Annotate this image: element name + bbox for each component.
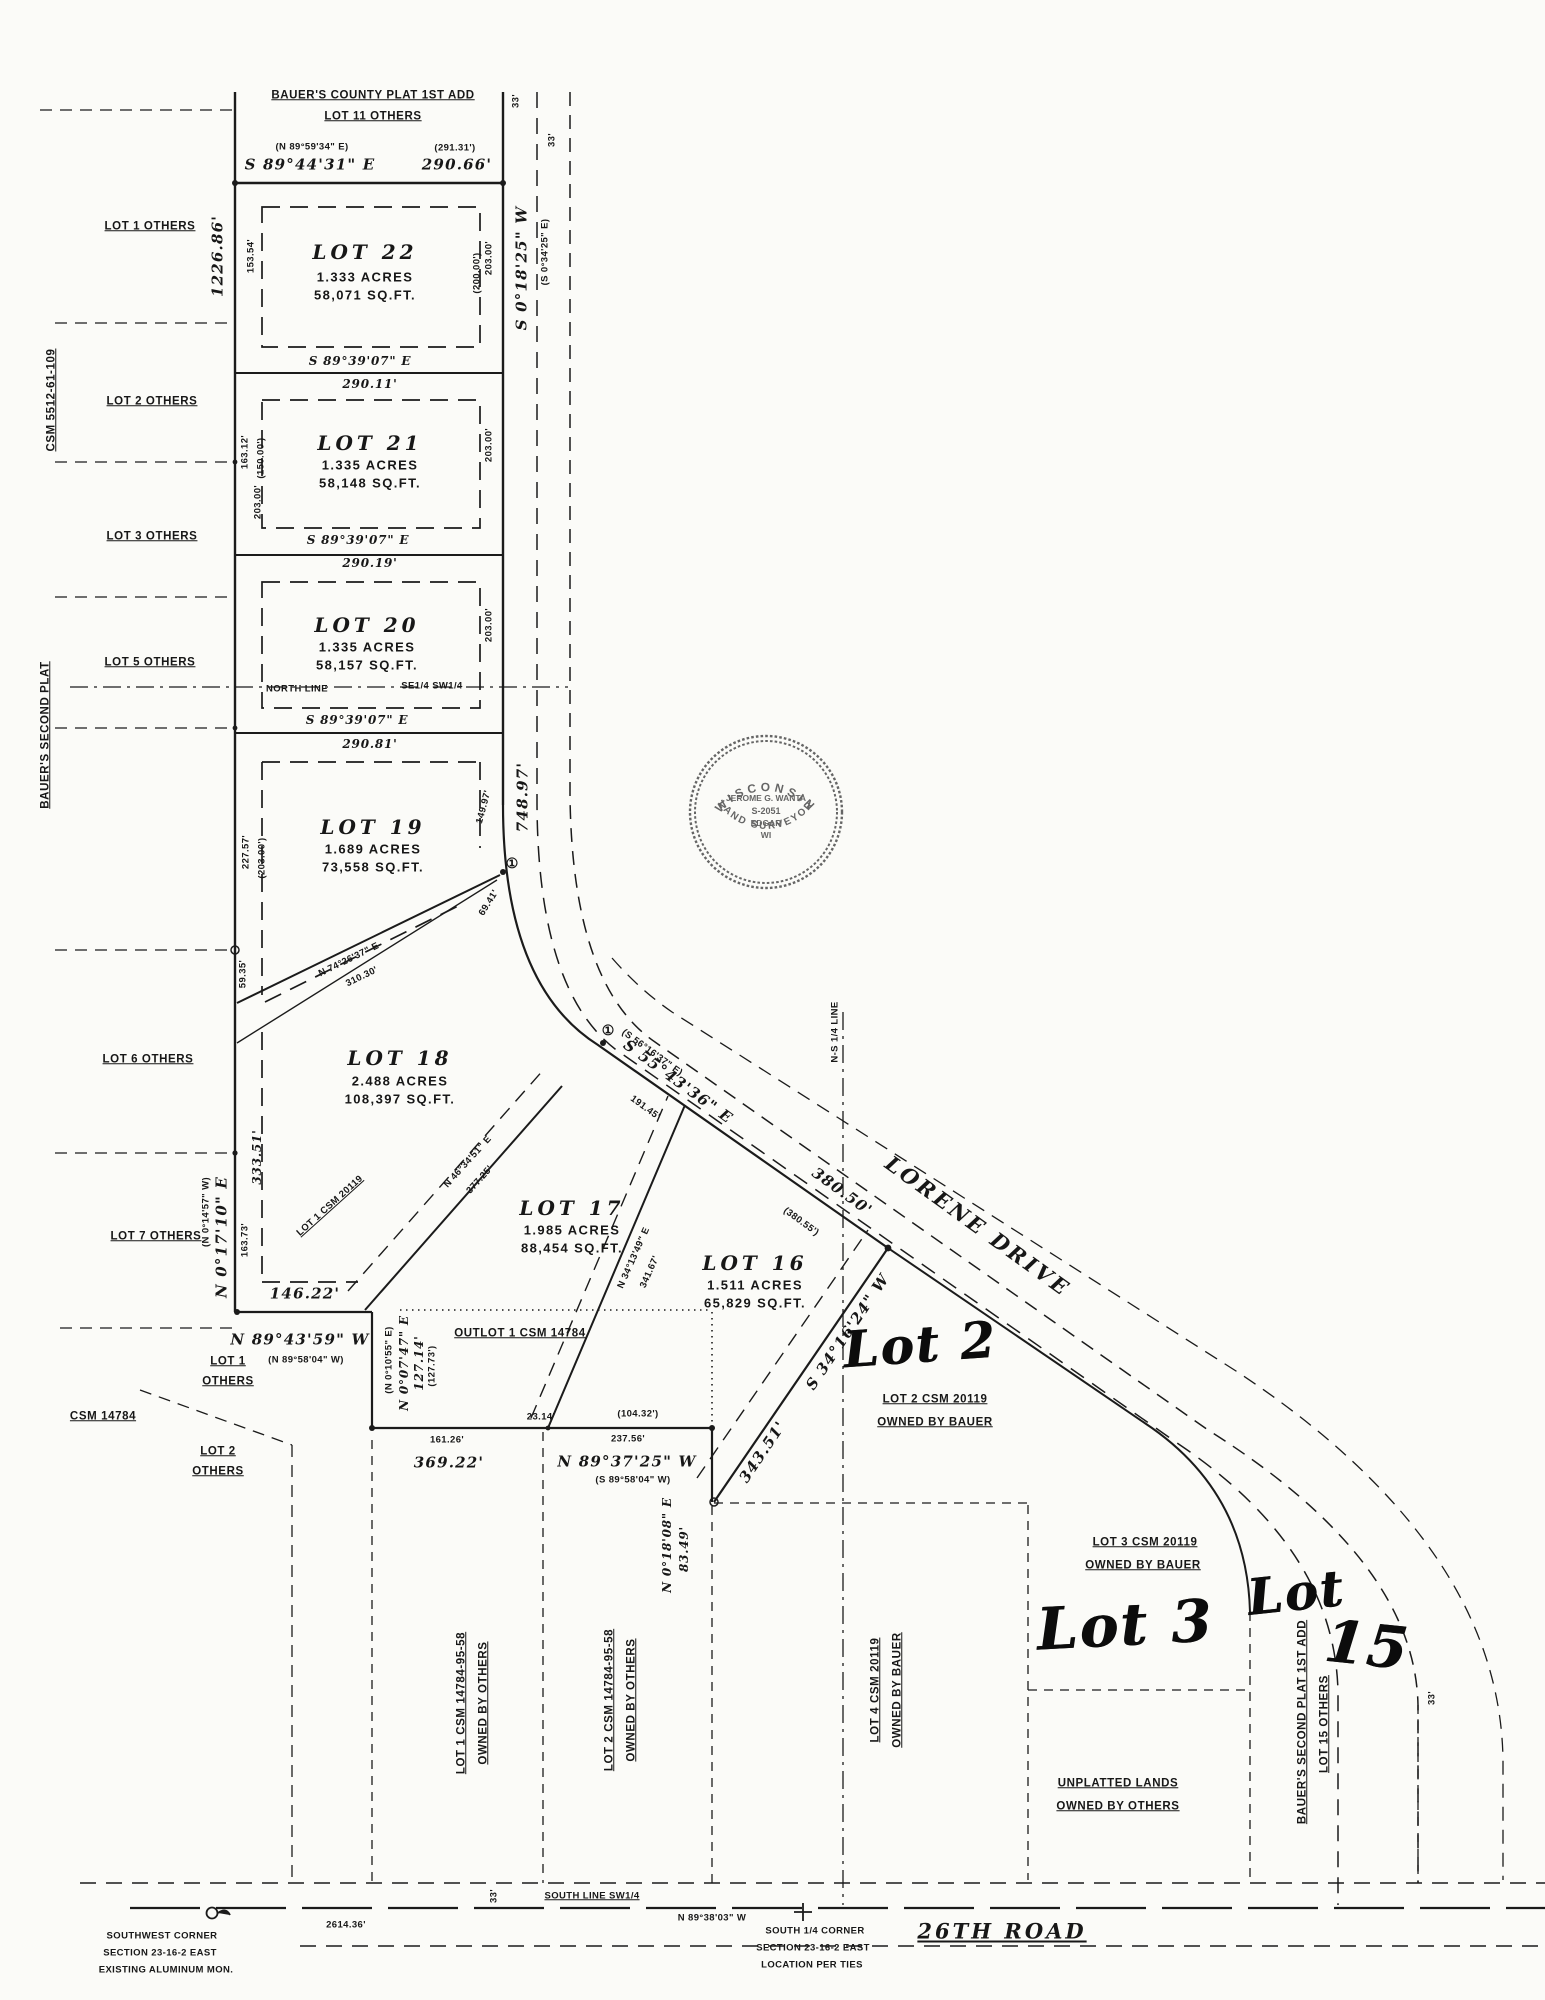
div1-bearing: S 89°39'07" E <box>309 355 412 367</box>
bauers-second-left: BAUER'S SECOND PLAT <box>40 661 52 808</box>
west-bearing-paren: (N 0°14'57" W) <box>201 1177 211 1247</box>
lot17-sqft: 88,454 SQ.FT. <box>521 1242 623 1255</box>
s-quarter-2: SECTION 23-16-2 EAST <box>756 1943 870 1953</box>
south-bearing: N 89°37'25" W <box>557 1455 696 1470</box>
lot1-others: LOT 1 OTHERS <box>105 221 196 233</box>
parcel1-rot-2: OWNED BY OTHERS <box>478 1641 490 1764</box>
parcel4-rot-2: OWNED BY BAUER <box>892 1632 904 1748</box>
unplatted-2: OWNED BY OTHERS <box>1056 1801 1179 1813</box>
lot20-acres: 1.335 ACRES <box>319 641 416 654</box>
lot21-title: LOT 21 <box>317 433 422 453</box>
parcel2-rot-2: OWNED BY OTHERS <box>626 1638 638 1761</box>
road-dist: 748.97' <box>516 762 531 832</box>
lot7-others: LOT 7 OTHERS <box>111 1231 202 1243</box>
row-width-33-a: 33' <box>511 94 521 108</box>
lorene-dist-1: 191.45' <box>628 1094 661 1122</box>
lorene-dist-2: 380.50' <box>809 1165 875 1219</box>
csm20119-hatch: LOT 1 CSM 20119 <box>295 1174 365 1238</box>
lot17-title: LOT 17 <box>519 1198 624 1218</box>
lot20-title: LOT 20 <box>314 615 419 635</box>
lot3-csm-2: OWNED BY BAUER <box>1085 1560 1201 1572</box>
lot19-dim-right: 149.97' <box>475 789 493 824</box>
bl-lot1-b: OTHERS <box>202 1376 254 1388</box>
east-jog-bearing: N 0°18'08" E <box>661 1497 673 1593</box>
top-bearing: S 89°44'31" E <box>245 158 376 173</box>
div2-dist: 290.19' <box>342 557 397 569</box>
parcel4-rot-1: LOT 4 CSM 20119 <box>870 1638 882 1743</box>
div3-bearing: S 89°39'07" E <box>306 714 409 726</box>
lot21-dim-left: 163.12' <box>240 435 250 469</box>
lot17-diag-dist: 377.25' <box>465 1164 495 1196</box>
lot18-dim-left: 333.51' <box>251 1129 263 1184</box>
lot3-others: LOT 3 OTHERS <box>107 531 198 543</box>
lot18-dim-left2: 163.73' <box>240 1223 250 1257</box>
s-quarter-3: LOCATION PER TIES <box>761 1960 863 1970</box>
top-bearing-paren: (N 89°59'34" E) <box>275 142 348 152</box>
sw-corner-2: SECTION 23-16-2 EAST <box>103 1948 217 1958</box>
lot18-acres: 2.488 ACRES <box>352 1075 449 1088</box>
bl-lot1-a: LOT 1 <box>210 1356 246 1368</box>
lot21-acres: 1.335 ACRES <box>322 459 419 472</box>
south-dist-1b: 369.22' <box>414 1456 484 1471</box>
south-line-sw: SOUTH LINE SW1/4 <box>544 1891 639 1901</box>
outlot-w-bearing: N 0°07'47" E <box>398 1315 410 1411</box>
lot19-diag-dist: 310.30' <box>345 965 380 988</box>
label-layer: BAUER'S COUNTY PLAT 1ST ADDLOT 11 OTHERS… <box>0 0 1545 2000</box>
lot20-sqft: 58,157 SQ.FT. <box>316 659 418 672</box>
lot21-dim-left-paren: (150.00') <box>256 437 266 478</box>
csm-5512: CSM 5512-61-109 <box>46 349 58 452</box>
lot18-s-paren: (N 89°58'04" W) <box>268 1355 344 1365</box>
outlot-w-dist-paren: (127.73') <box>427 1345 437 1386</box>
lot19-dim-left-paren: (203.00') <box>257 837 267 878</box>
bl-lot2-a: LOT 2 <box>200 1446 236 1458</box>
bottom-bearing: N 89°38'03" W <box>678 1913 747 1923</box>
lot16-sqft: 65,829 SQ.FT. <box>704 1297 806 1310</box>
lot16-acres: 1.511 ACRES <box>707 1279 803 1292</box>
outlot-label: OUTLOT 1 CSM 14784 <box>454 1328 586 1340</box>
road-bearing: S 0°18'25" W <box>515 206 530 331</box>
lorene-drive-name: LORENE DRIVE <box>882 1152 1075 1300</box>
lot19-dim-right2: 69.41' <box>477 888 500 917</box>
outlot-w-paren: (N 0°10'55" E) <box>384 1326 394 1393</box>
road-bearing-paren: (S 0°34'25" E) <box>540 219 550 286</box>
south-dist-paren: (104.32') <box>617 1409 658 1419</box>
s-quarter-1: SOUTH 1/4 CORNER <box>765 1926 864 1936</box>
div3-dist: 290.81' <box>342 738 397 750</box>
handwritten-lot15-b: 15 <box>1322 1612 1412 1679</box>
top-dist: 290.66' <box>422 158 492 173</box>
lot2-csm-2: OWNED BY BAUER <box>877 1417 993 1429</box>
se-sw-quarter: SE1/4 SW1/4 <box>401 681 462 691</box>
div2-bearing: S 89°39'07" E <box>307 534 410 546</box>
lot17-acres: 1.985 ACRES <box>524 1224 621 1237</box>
lot20-dim-right: 203.00' <box>484 608 494 642</box>
row-width-33-b: 33' <box>547 133 557 147</box>
sw-corner-1: SOUTHWEST CORNER <box>107 1931 218 1941</box>
lot16-diag-dist: 341.67' <box>639 1254 662 1289</box>
east-jog-dist: 83.49' <box>678 1526 690 1572</box>
sw-corner-3: EXISTING ALUMINUM MON. <box>99 1965 234 1975</box>
curve-marker-1: ① <box>506 856 519 870</box>
lot2-csm-1: LOT 2 CSM 20119 <box>883 1394 988 1406</box>
plat-map-scan: WISCONSIN LAND SURVEYOR JEROME G. WANTA … <box>0 0 1545 2000</box>
lot17-diag-bearing: N 46°34'51" E <box>442 1134 493 1189</box>
lot18-s-dist: 146.22' <box>270 1287 340 1302</box>
lot2-others: LOT 2 OTHERS <box>107 396 198 408</box>
lot15-plat-rot-2: LOT 15 OTHERS <box>1319 1675 1331 1773</box>
lot18-sqft: 108,397 SQ.FT. <box>345 1093 456 1106</box>
lot18-title: LOT 18 <box>347 1048 452 1068</box>
lot19-dim-left: 227.57' <box>241 835 251 869</box>
lot19-title: LOT 19 <box>320 817 425 837</box>
bottom-2614: 2614.36' <box>326 1920 366 1930</box>
div1-dist: 290.11' <box>342 378 397 390</box>
outlot-w-dist: 127.14' <box>413 1335 425 1390</box>
lot15-plat-rot-1: BAUER'S SECOND PLAT 1ST ADD <box>1297 1620 1309 1824</box>
lot22-dim-right: 203.00' <box>484 241 494 275</box>
lot22-acres: 1.333 ACRES <box>317 271 414 284</box>
right-33: 33' <box>1427 1691 1437 1705</box>
lot19-sqft: 73,558 SQ.FT. <box>322 861 424 874</box>
handwritten-lot3: Lot 3 <box>1035 1591 1215 1658</box>
bl-csm14784: CSM 14784 <box>70 1411 136 1423</box>
lorene-dist-2-paren: (380.55') <box>782 1206 821 1238</box>
lorene-bearing: S 55°43'36" E <box>621 1037 736 1126</box>
plat-note-1: BAUER'S COUNTY PLAT 1ST ADD <box>271 90 474 102</box>
lot3-csm-1: LOT 3 CSM 20119 <box>1093 1537 1198 1549</box>
handwritten-lot2: Lot 2 <box>842 1315 999 1376</box>
lot20-dim-left: 203.00' <box>253 485 263 519</box>
plat-note-2: LOT 11 OTHERS <box>324 111 421 123</box>
west-bearing: N 0°17'10" E <box>215 1176 230 1298</box>
lot18-s-bearing: N 89°43'59" W <box>230 1333 369 1348</box>
lot6-others: LOT 6 OTHERS <box>103 1054 194 1066</box>
lot21-sqft: 58,148 SQ.FT. <box>319 477 421 490</box>
lot5-others: LOT 5 OTHERS <box>105 657 196 669</box>
unplatted-1: UNPLATTED LANDS <box>1058 1778 1179 1790</box>
south-dist-1: 161.26' <box>430 1435 464 1445</box>
lot16-title: LOT 16 <box>702 1253 807 1273</box>
west-line-dist: 1226.86' <box>211 215 226 297</box>
lot22-sqft: 58,071 SQ.FT. <box>314 289 416 302</box>
south-dist-2: 237.56' <box>611 1434 645 1444</box>
lot22-dim-right-paren: (200.00') <box>472 252 482 293</box>
lot18-dim-topleft: 59.35' <box>238 960 248 988</box>
top-dist-paren: (291.31') <box>434 143 475 153</box>
parcel1-rot-1: LOT 1 CSM 14784-95-58 <box>456 1632 468 1774</box>
lot22-dim-left: 153.54' <box>246 239 256 273</box>
south-dist-tick: 23.14' <box>527 1412 555 1422</box>
lot2-diag-dist: 343.51' <box>737 1419 789 1486</box>
lot21-dim-right: 203.00' <box>484 428 494 462</box>
bl-lot2-b: OTHERS <box>192 1466 244 1478</box>
ns-quarter-line: N-S 1/4 LINE <box>830 1001 840 1062</box>
lot22-title: LOT 22 <box>312 242 417 262</box>
south-bearing-paren: (S 89°58'04" W) <box>595 1475 670 1485</box>
north-line: NORTH LINE <box>266 684 328 694</box>
bottom-33: 33' <box>489 1889 499 1903</box>
curve-marker-2: ① <box>602 1023 615 1037</box>
road-26th: 26TH ROAD <box>917 1921 1086 1942</box>
lot19-acres: 1.689 ACRES <box>325 843 422 856</box>
parcel2-rot-1: LOT 2 CSM 14784-95-58 <box>604 1629 616 1771</box>
